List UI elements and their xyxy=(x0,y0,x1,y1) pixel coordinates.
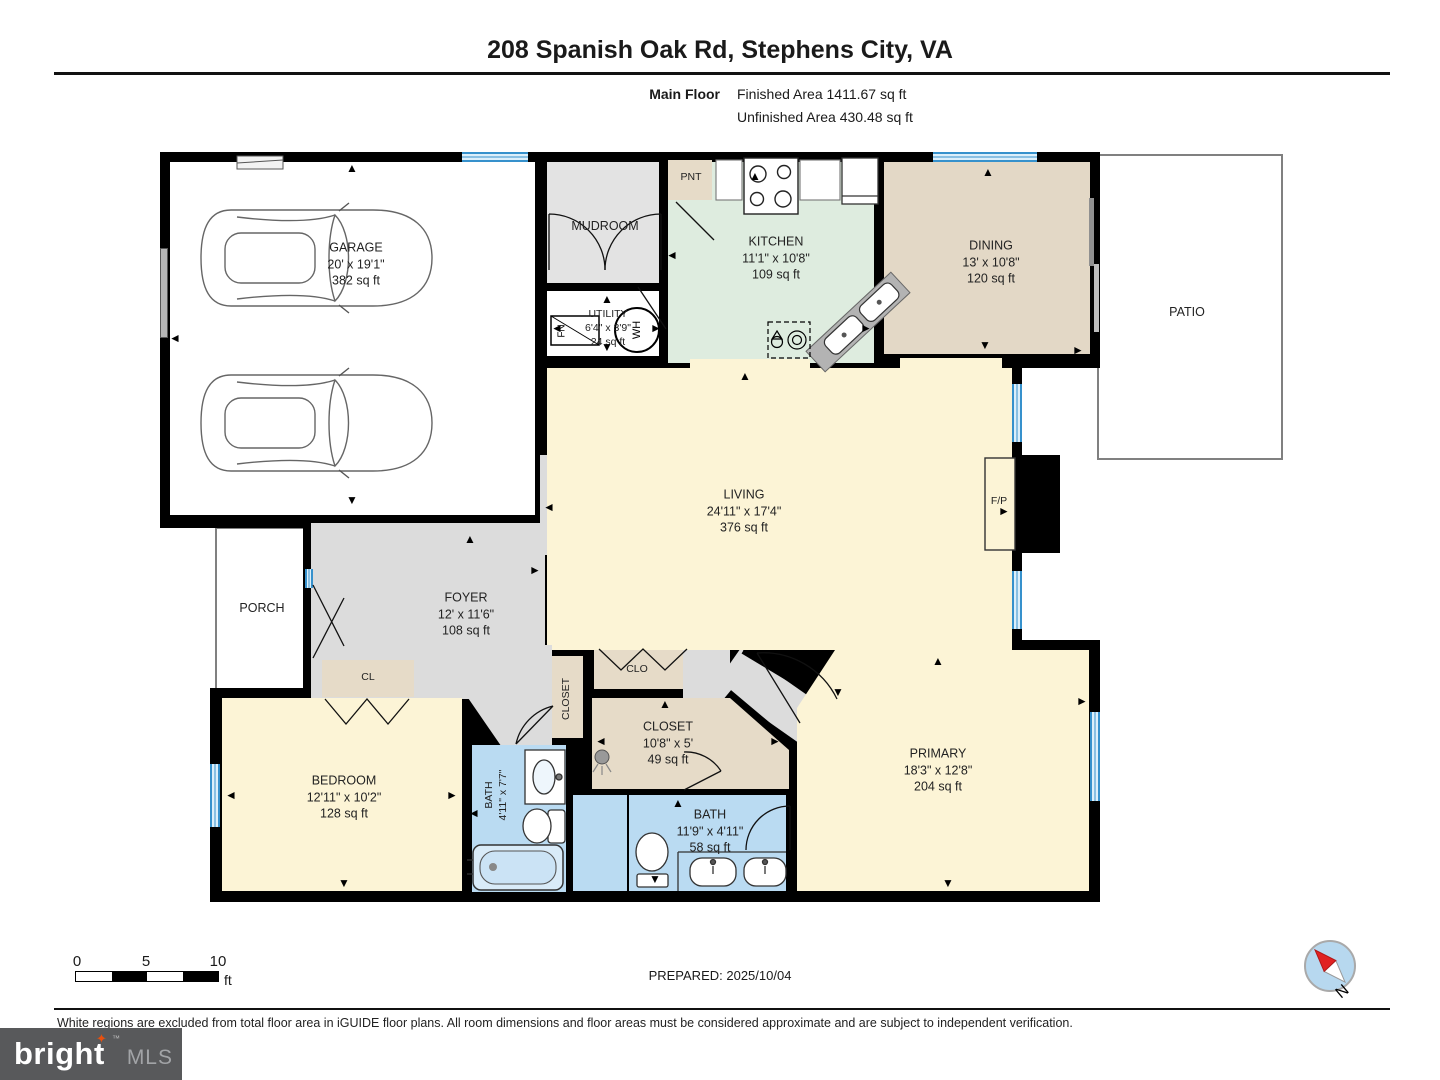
room-name: CLO xyxy=(626,663,648,677)
room-dims: 20' x 19'1" xyxy=(327,256,384,273)
room-area: 108 sq ft xyxy=(438,622,494,639)
shower-icon xyxy=(593,750,628,891)
room-area: 109 sq ft xyxy=(742,266,810,283)
logo-suffix: MLS xyxy=(127,1046,173,1070)
room-name: PNT xyxy=(681,171,702,185)
room-dims: 18'3" x 12'8" xyxy=(904,762,973,779)
kitchen-island-icon xyxy=(768,322,810,358)
direction-arrow: ▲ xyxy=(464,533,476,545)
room-name: GARAGE xyxy=(327,239,384,256)
direction-arrow: ► xyxy=(769,735,781,747)
room-area: 49 sq ft xyxy=(643,751,693,768)
direction-arrow: ► xyxy=(529,564,541,576)
water-heater-label: WH xyxy=(631,321,643,339)
room-name: CL xyxy=(361,671,374,685)
room-dims: 11'9" x 4'11" xyxy=(677,823,744,840)
room-dims: 12' x 11'6" xyxy=(438,606,494,623)
direction-arrow: ► xyxy=(998,505,1010,517)
direction-arrow: ▲ xyxy=(672,797,684,809)
brightmls-logo: bright ✦ ™ MLS xyxy=(0,1028,182,1080)
fridge-icon xyxy=(842,158,878,204)
direction-arrow: ▲ xyxy=(601,293,613,305)
direction-arrow: ▲ xyxy=(982,166,994,178)
direction-arrow: ► xyxy=(860,322,872,334)
garage-opener-icon xyxy=(237,156,283,169)
bathroom-sink-icon xyxy=(525,750,565,804)
room-area: 120 sq ft xyxy=(962,270,1019,287)
room-label-bedroom: BEDROOM 12'11" x 10'2" 128 sq ft xyxy=(307,772,382,822)
room-name: MUDROOM xyxy=(571,218,638,235)
room-dims: 12'11" x 10'2" xyxy=(307,789,382,806)
direction-arrow: ◄ xyxy=(595,735,607,747)
room-name: LIVING xyxy=(707,486,782,503)
room-label-patio: PATIO xyxy=(1169,304,1205,321)
room-name: FOYER xyxy=(438,589,494,606)
star-icon: ✦ xyxy=(96,1031,107,1047)
room-label-garage: GARAGE 20' x 19'1" 382 sq ft xyxy=(327,239,384,289)
direction-arrow: ◄ xyxy=(666,249,678,261)
direction-arrow: ▲ xyxy=(659,698,671,710)
room-dims: 13' x 10'8" xyxy=(962,254,1019,271)
room-label-primary: PRIMARY 18'3" x 12'8" 204 sq ft xyxy=(904,745,973,795)
room-name: PORCH xyxy=(239,600,284,617)
disclaimer-text: White regions are excluded from total fl… xyxy=(57,1016,1257,1030)
room-label-dining: DINING 13' x 10'8" 120 sq ft xyxy=(962,237,1019,287)
room-name: DINING xyxy=(962,237,1019,254)
room-name: PRIMARY xyxy=(904,745,973,762)
room-label-kitchen: KITCHEN 11'1" x 10'8" 109 sq ft xyxy=(742,233,810,283)
room-name: BATH xyxy=(677,806,744,823)
direction-arrow: ► xyxy=(1076,695,1088,707)
direction-arrow: ▲ xyxy=(739,370,751,382)
room-name: UTILITY xyxy=(585,308,631,322)
direction-arrow: ◄ xyxy=(468,807,480,819)
stove-icon xyxy=(744,158,798,214)
direction-arrow: ◄ xyxy=(551,322,563,334)
direction-arrow: ► xyxy=(650,322,662,334)
room-name: CLOSET xyxy=(643,718,693,735)
room-dims: 4'11" x 7'7" xyxy=(497,770,511,821)
room-label-pantry: PNT xyxy=(681,171,702,185)
room-dims: 11'1" x 10'8" xyxy=(742,250,810,267)
direction-arrow: ▲ xyxy=(346,162,358,174)
direction-arrow: ▼ xyxy=(346,494,358,506)
room-dims: 24'11" x 17'4" xyxy=(707,503,782,520)
room-name: PATIO xyxy=(1169,304,1205,321)
room-area: 204 sq ft xyxy=(904,778,973,795)
direction-arrow: ► xyxy=(446,789,458,801)
room-name: BATH xyxy=(483,770,497,821)
room-area: 58 sq ft xyxy=(677,839,744,856)
kitchen-sink-icon xyxy=(806,272,910,372)
direction-arrow: ◄ xyxy=(225,789,237,801)
car-icon xyxy=(201,203,432,478)
direction-arrow: ◄ xyxy=(543,501,555,513)
room-label-porch: PORCH xyxy=(239,600,284,617)
room-label-foyer: FOYER 12' x 11'6" 108 sq ft xyxy=(438,589,494,639)
room-label-bath-hall: BATH 4'11" x 7'7" xyxy=(483,770,511,821)
bathtub-icon xyxy=(467,845,563,890)
direction-arrow: ▼ xyxy=(942,877,954,889)
room-area: 382 sq ft xyxy=(327,272,384,289)
direction-arrow: ▼ xyxy=(601,341,613,353)
room-label-living: LIVING 24'11" x 17'4" 376 sq ft xyxy=(707,486,782,536)
room-name: CLOSET xyxy=(560,678,574,720)
direction-arrow: ▲ xyxy=(932,655,944,667)
direction-arrow: ▼ xyxy=(649,873,661,885)
footer-divider xyxy=(54,1008,1390,1010)
direction-arrow: ▲ xyxy=(749,170,761,182)
room-label-closet-primary: CLOSET 10'8" x 5' 49 sq ft xyxy=(643,718,693,768)
room-area: 128 sq ft xyxy=(307,805,382,822)
room-name: KITCHEN xyxy=(742,233,810,250)
fixtures-layer: FN WH xyxy=(0,0,1440,1080)
room-dims: 6'4" x 3'9" xyxy=(585,322,631,336)
direction-arrow: ▼ xyxy=(979,339,991,351)
prepared-date: PREPARED: 2025/10/04 xyxy=(0,968,1440,983)
direction-arrow: ◄ xyxy=(169,332,181,344)
room-label-closet-cl: CL xyxy=(361,671,374,685)
room-label-mudroom: MUDROOM xyxy=(571,218,638,235)
room-label-closet-hall: CLOSET xyxy=(560,678,574,720)
direction-arrow: ► xyxy=(1072,344,1084,356)
toilet-icon xyxy=(523,809,565,843)
direction-arrow: ▼ xyxy=(832,686,844,698)
logo-brand: bright xyxy=(14,1036,105,1072)
floorplan-page: 208 Spanish Oak Rd, Stephens City, VA Ma… xyxy=(0,0,1440,1080)
direction-arrow: ▼ xyxy=(338,877,350,889)
double-vanity-icon xyxy=(678,852,786,891)
room-label-bath-primary: BATH 11'9" x 4'11" 58 sq ft xyxy=(677,806,744,856)
room-dims: 10'8" x 5' xyxy=(643,735,693,752)
room-label-closet-clo: CLO xyxy=(626,663,648,677)
room-area: 376 sq ft xyxy=(707,519,782,536)
room-name: BEDROOM xyxy=(307,772,382,789)
logo-tm: ™ xyxy=(112,1034,120,1043)
